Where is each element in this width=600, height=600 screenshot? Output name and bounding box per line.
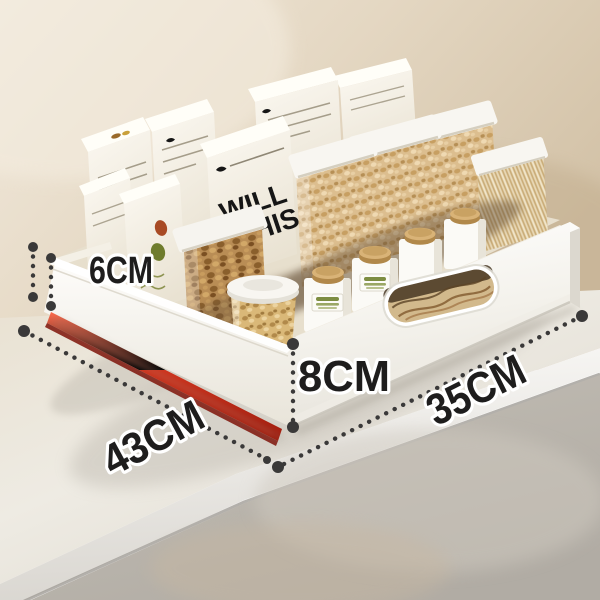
- scene: WILL WHIS: [0, 0, 600, 600]
- dim-label-6cm: 6CM: [89, 250, 153, 292]
- product-photo-organizer-drawer: WILL WHIS: [0, 0, 600, 600]
- green-label: [364, 277, 386, 281]
- green-label: [316, 297, 339, 301]
- dim-label-8cm: 8CM: [298, 352, 390, 401]
